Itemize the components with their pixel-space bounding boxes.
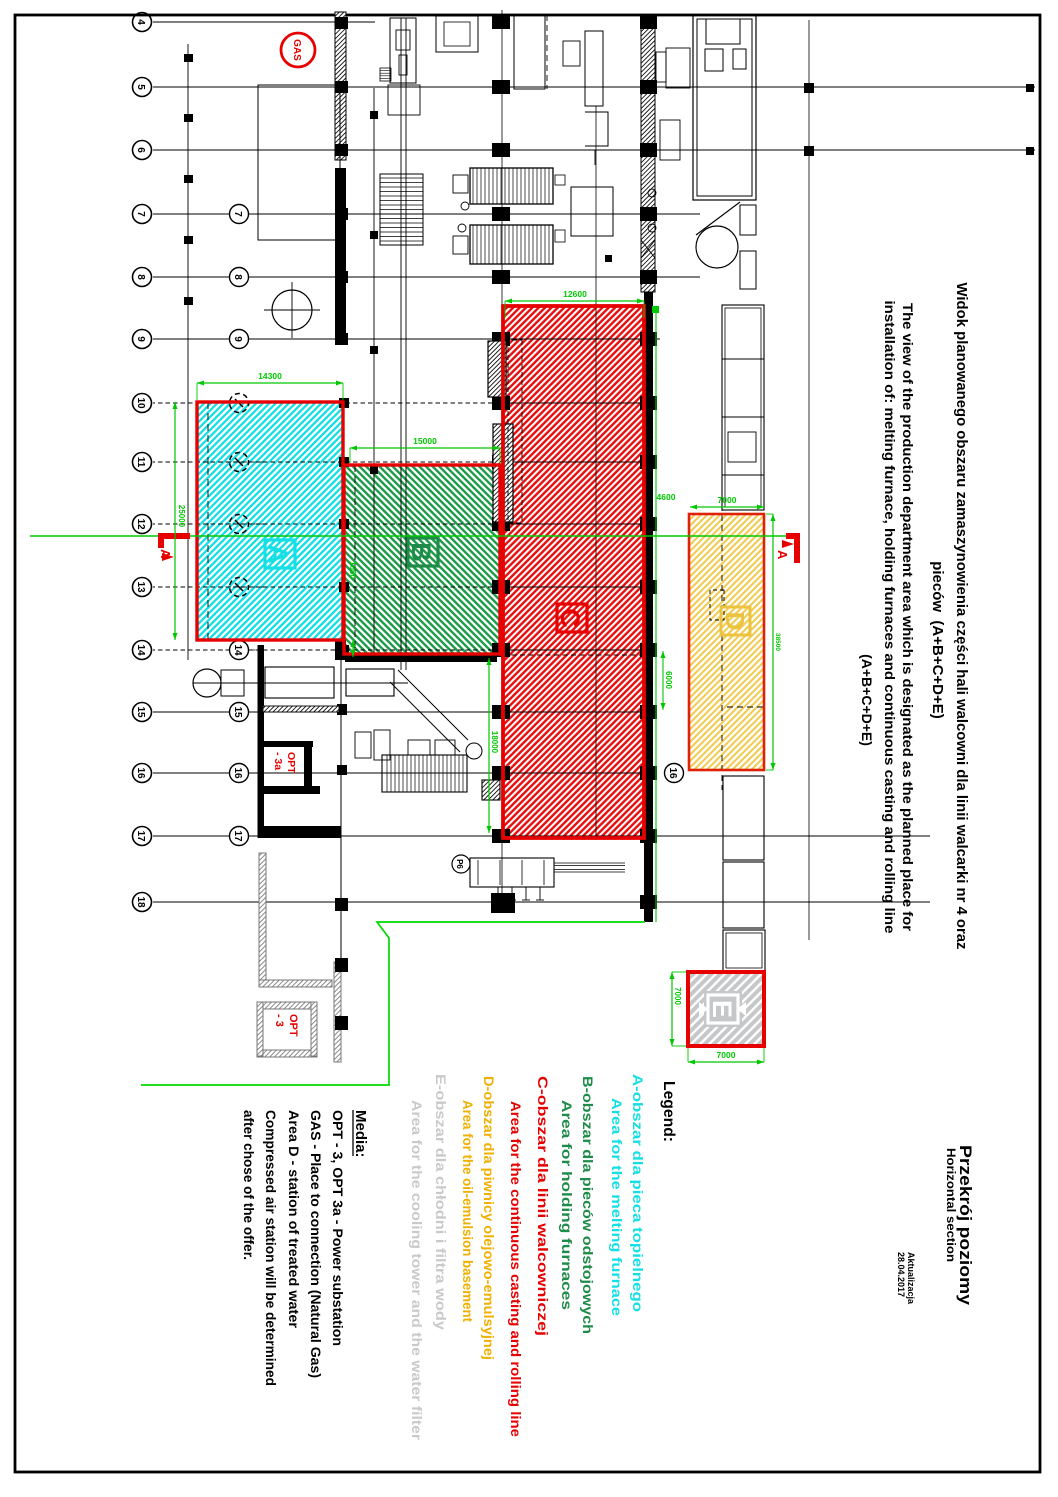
svg-text:7000: 7000 (673, 987, 682, 1005)
svg-text:C: C (555, 608, 585, 628)
svg-text:6000: 6000 (664, 671, 673, 689)
svg-text:14300: 14300 (258, 371, 282, 381)
svg-text:15: 15 (135, 706, 146, 718)
svg-text:14: 14 (135, 644, 146, 656)
svg-text:Aktualizacja: Aktualizacja (906, 1252, 916, 1305)
svg-text:12600: 12600 (563, 289, 587, 299)
svg-text:installation of: melting furna: installation of: melting furnace, holdin… (882, 301, 898, 934)
svg-text:6: 6 (135, 147, 146, 153)
svg-text:Horizontal section: Horizontal section (944, 1148, 956, 1262)
svg-text:GAS: GAS (291, 39, 302, 61)
svg-text:5: 5 (135, 84, 146, 90)
svg-text:16: 16 (232, 767, 243, 779)
svg-text:28.04.2017: 28.04.2017 (896, 1252, 906, 1297)
svg-text:D: D (720, 612, 750, 631)
svg-text:8: 8 (232, 274, 243, 280)
svg-text:- 3a: - 3a (272, 752, 284, 770)
svg-text:Area for the continuous castin: Area for the continuous casting and roll… (508, 1101, 524, 1437)
svg-text:25000: 25000 (177, 505, 186, 528)
svg-text:P6: P6 (455, 859, 464, 869)
svg-text:15000: 15000 (413, 436, 437, 446)
svg-text:7: 7 (232, 211, 243, 217)
svg-text:OPT - 3, OPT 3a - Power substa: OPT - 3, OPT 3a - Power substation (330, 1110, 346, 1346)
svg-text:Przekrój poziomy: Przekrój poziomy (956, 1145, 975, 1306)
svg-text:1000: 1000 (348, 561, 357, 579)
svg-text:Area for the oil-emulsion base: Area for the oil-emulsion basement (460, 1100, 476, 1322)
svg-text:C-obszar dla linii walcownicze: C-obszar dla linii walcowniczej (535, 1076, 551, 1336)
svg-text:10: 10 (135, 397, 146, 409)
svg-text:7: 7 (135, 211, 146, 217)
svg-text:The view of the production dep: The view of the production department ar… (900, 303, 916, 932)
svg-text:17: 17 (135, 830, 146, 842)
svg-text:A: A (775, 550, 790, 560)
svg-text:13: 13 (135, 581, 146, 593)
svg-text:16: 16 (135, 767, 146, 779)
svg-text:Area for the melting furnace: Area for the melting furnace (609, 1098, 625, 1316)
svg-text:9: 9 (135, 336, 146, 342)
svg-text:E-obszar dla chłodni i filtra: E-obszar dla chłodni i filtra wody (433, 1074, 449, 1330)
svg-text:16: 16 (667, 767, 678, 779)
svg-text:- 3: - 3 (273, 1014, 285, 1027)
svg-text:8: 8 (135, 274, 146, 280)
svg-text:A: A (158, 549, 173, 559)
svg-text:17: 17 (232, 830, 243, 842)
svg-text:B-obszar dla pieców odstojowyc: B-obszar dla pieców odstojowych (580, 1076, 596, 1334)
svg-text:after chose of the offer.: after chose of the offer. (241, 1110, 257, 1260)
svg-text:9: 9 (232, 336, 243, 342)
svg-text:Compressed air station will be: Compressed air station will be determine… (263, 1110, 279, 1386)
svg-text:Area for holding furnaces: Area for holding furnaces (559, 1100, 575, 1310)
svg-text:E: E (707, 1000, 737, 1018)
svg-text:OPT: OPT (285, 752, 297, 774)
svg-text:14: 14 (232, 644, 243, 656)
svg-text:Media:: Media: (352, 1110, 369, 1158)
svg-text:7000: 7000 (717, 1050, 736, 1060)
svg-text:Widok planowanego obszaru zama: Widok planowanego obszaru zamaszynowieni… (953, 283, 970, 950)
svg-text:Area for the cooling tower and: Area for the cooling tower and the water… (409, 1100, 425, 1441)
svg-text:18000: 18000 (490, 731, 499, 754)
svg-text:11: 11 (135, 457, 146, 468)
svg-text:18: 18 (135, 896, 146, 908)
svg-text:7000: 7000 (718, 495, 737, 505)
svg-text:15: 15 (232, 706, 243, 718)
svg-text:4: 4 (135, 19, 146, 25)
svg-text:Area D - station of treated wa: Area D - station of treated water (286, 1110, 302, 1329)
svg-text:Legend:: Legend: (660, 1081, 677, 1142)
svg-text:pieców (A+B+C+D+E): pieców (A+B+C+D+E) (929, 561, 946, 719)
svg-text:4600: 4600 (657, 492, 676, 502)
svg-text:(A+B+C+D+E): (A+B+C+D+E) (859, 654, 875, 746)
svg-text:OPT: OPT (287, 1014, 299, 1037)
svg-text:12: 12 (135, 518, 146, 530)
svg-text:38500: 38500 (774, 633, 781, 651)
svg-text:GAS - Place to connection (Nat: GAS - Place to connection (Natural Gas) (308, 1110, 324, 1378)
svg-text:A-obszar dla pieca topielnego: A-obszar dla pieca topielnego (630, 1074, 646, 1312)
svg-text:A: A (263, 544, 293, 564)
svg-text:D-obszar dla piwnicy olejowo-e: D-obszar dla piwnicy olejowo-emulsyjnej (481, 1076, 497, 1360)
svg-text:B: B (406, 542, 436, 562)
